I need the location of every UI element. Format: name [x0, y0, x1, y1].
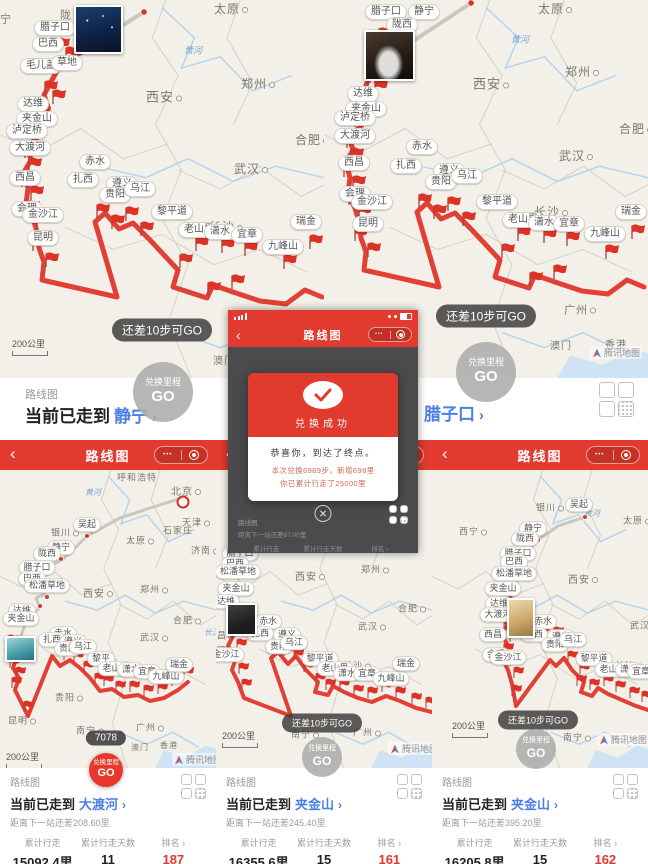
section-label: 路线图 [25, 386, 58, 402]
station-bubble: 瑞金 [165, 657, 193, 672]
redeem-go-button[interactable]: 兑换里程GO [89, 753, 123, 787]
flag-marker [310, 234, 323, 249]
stat-label[interactable]: 排名 › [357, 836, 422, 849]
station-bubble: 吴起 [565, 497, 593, 512]
chevron-icon[interactable]: › [122, 798, 126, 812]
station-bubble: 夹金山 [2, 611, 39, 626]
station-bubble: 乌江 [124, 181, 156, 197]
station-bubble: 陇西 [33, 546, 61, 561]
nav-bar: ‹ 路线图 ••• [228, 323, 418, 347]
checkin-photo [74, 5, 123, 54]
stat-cell: 排名 ›162 [573, 836, 638, 864]
bottom-left-screenshot: ‹路线图•••呼和浩特北京天津石家庄济南太原银川西安郑州合肥武汉贵阳昆明南宁广州… [0, 440, 216, 864]
capsule: ••• [586, 446, 640, 464]
redeem-go-label: 兑换里程 [145, 377, 181, 388]
flag-marker [396, 687, 406, 698]
map-attribution: 腾讯地图 [590, 346, 642, 359]
city-label: 澳门 [131, 744, 149, 752]
qr-code-icon[interactable] [195, 788, 206, 799]
city-label: 郑州 [140, 586, 168, 595]
city-label: 合肥 [398, 605, 426, 614]
route-map[interactable]: 呼和浩特北京天津石家庄济南太原银川西安郑州合肥武汉贵阳昆明南宁广州澳门香港长江黄… [0, 470, 216, 768]
city-label: 合肥 [295, 134, 324, 146]
section-label: 路线图 [442, 774, 638, 789]
city-dot-icon [213, 548, 216, 554]
window-icon[interactable] [400, 505, 408, 513]
station-bubble: 黎平道 [476, 194, 518, 210]
stats-row: 累计行走15092.4里累计行走天数11排名 ›187 [10, 836, 206, 864]
city-label: 香港 [160, 742, 178, 750]
station-dot [468, 0, 474, 6]
province-border [502, 166, 648, 196]
flag-marker [180, 253, 193, 268]
station-bubble: 九峰山 [262, 239, 304, 255]
stat-cell: 累计行走天数15 [507, 836, 572, 864]
flag-marker [104, 675, 114, 686]
stat-value: 162 [573, 852, 638, 864]
map-attribution: 腾讯地图 [388, 742, 432, 755]
map-attribution-label: 腾讯地图 [186, 753, 216, 766]
station-bubble: 金沙江 [351, 194, 393, 210]
flag-marker [242, 679, 252, 690]
flag-marker [239, 663, 249, 674]
station-bubble: 宜章 [627, 664, 648, 679]
station-bubble: 乌江 [451, 168, 483, 184]
congrats-text: 恭喜你，到达了终点。 [253, 446, 393, 459]
capsule: ••• [154, 446, 208, 464]
stat-value: 187 [141, 852, 206, 864]
station-bubble: 昆明 [27, 230, 59, 246]
city-label: 黄河 [511, 36, 529, 45]
station-bubble: 九峰山 [372, 671, 409, 686]
station-bubble: 大渡河 [9, 140, 51, 156]
stat-value: 15092.4里 [10, 852, 75, 864]
station-bubble: 金沙江 [489, 650, 526, 665]
city-label: 武汉 [234, 163, 268, 175]
flag-marker [144, 685, 154, 696]
window-icon[interactable] [613, 774, 624, 785]
current-station-link[interactable]: 腊子口 [424, 400, 475, 425]
stat-value: 16205.8里 [442, 852, 507, 864]
checkin-photo [507, 598, 535, 638]
city-dot-icon [176, 95, 182, 101]
station-dot [141, 9, 147, 15]
redeem-go-text: GO [313, 754, 332, 769]
map-scale-bar [6, 764, 42, 768]
chevron-icon[interactable]: › [554, 798, 558, 812]
square-icon[interactable] [599, 401, 615, 417]
station-dot [85, 534, 90, 539]
next-station-info: 距离下一站还差245.40里 [226, 816, 422, 829]
flag-marker [448, 196, 461, 211]
city-dot-icon [375, 730, 381, 736]
detail-line-2: 你已累计行走了25000里 [253, 478, 393, 489]
station-bubble: 夹金山 [484, 581, 521, 596]
city-dot-icon [380, 624, 386, 630]
flag-marker [126, 206, 139, 221]
flag-marker [31, 185, 44, 200]
exit-icon[interactable] [391, 330, 412, 339]
city-label: 黄河 [85, 489, 101, 497]
redeem-go-label: 兑换里程 [468, 357, 504, 368]
city-dot-icon [566, 7, 572, 13]
city-label: 石家庄 [163, 527, 193, 536]
city-label: 武汉 [140, 634, 168, 643]
city-label: 太原 [214, 3, 248, 15]
city-label: 昆明 [8, 717, 36, 726]
flag-marker [368, 687, 378, 698]
station-bubble: 九峰山 [584, 226, 626, 242]
chevron-icon[interactable]: › [479, 407, 484, 424]
mini-program-icons [389, 505, 408, 524]
stat-label: 累计行走 [238, 543, 295, 553]
mini-program-icons [397, 774, 422, 799]
map-scale-label: 200公里 [12, 339, 45, 349]
city-dot-icon [162, 587, 168, 593]
checkin-photo [364, 30, 415, 81]
map-scale: 200公里 [6, 753, 42, 768]
header-bar: ‹路线图••• [432, 440, 648, 470]
flag-marker [46, 252, 59, 267]
stat-label: 累计行走天数 [291, 836, 356, 849]
window-icon[interactable] [181, 774, 192, 785]
city-dot-icon [162, 635, 168, 641]
city-label: 武汉 [630, 622, 648, 631]
current-station-line: 当前已走到夹金山› [226, 794, 422, 813]
city-label: 西安 [83, 590, 113, 600]
next-station-info: 距离下一站还差208.60里 [10, 816, 206, 829]
station-bubble: 宜章 [231, 227, 263, 243]
city-dot-icon [77, 695, 83, 701]
redeem-go-text: GO [151, 388, 174, 407]
station-bubble: 草地 [51, 55, 83, 71]
capsule: ••• [368, 327, 412, 342]
city-dot-icon [503, 82, 509, 88]
stat-cell: 累计行走天数13 [295, 543, 352, 553]
city-dot-icon [262, 167, 268, 173]
station-bubble: 泸定桥 [6, 123, 48, 139]
station-bubble: 瑞金 [615, 204, 647, 220]
success-title: 兑换成功 [295, 415, 351, 430]
flag-marker [630, 687, 640, 698]
flag-marker [632, 224, 645, 239]
stat-cell: 累计行走16205.8里 [442, 836, 507, 864]
current-station-link[interactable]: 大渡河 [79, 794, 118, 813]
redeem-go-button[interactable]: 兑换里程GO [302, 737, 342, 777]
route-map[interactable]: 西宁银川太原西安武汉长沙南宁黄河吴起静宁陇西腊子口巴西松潘草地夹金山达维大渡河西… [432, 470, 648, 768]
stat-label[interactable]: 排名 › [573, 836, 638, 849]
compass-icon [174, 755, 184, 765]
province-border [551, 0, 577, 125]
map-scale: 200公里 [452, 722, 488, 738]
window-icon[interactable] [397, 774, 408, 785]
finish-ring-icon [177, 496, 190, 509]
stat-label: 累计行走天数 [507, 836, 572, 849]
more-icon[interactable]: ••• [369, 332, 390, 337]
city-dot-icon [593, 70, 599, 76]
stat-cell: 累计行走天数15 [291, 836, 356, 864]
city-label: 合肥 [173, 617, 201, 626]
flag-marker [130, 681, 140, 692]
mini-program-icons [181, 774, 206, 799]
station-bubble: 泸定桥 [334, 110, 376, 126]
station-bubble: 黎平道 [151, 204, 193, 220]
walking-app-screenshot-collage: 宁陇太原郑州西安合肥武汉长沙澳门黄河腊子口巴西毛儿盖草地达维夹金山泸定桥大渡河西… [0, 0, 648, 864]
station-bubble: 陇西 [511, 531, 539, 546]
city-dot-icon [195, 489, 201, 495]
steps-remaining-badge: 还差10步可GO [498, 711, 578, 730]
stat-label: 累计行走 [442, 836, 507, 849]
city-dot-icon [590, 308, 596, 314]
window-icon[interactable] [411, 774, 422, 785]
map-scale-label: 200公里 [452, 721, 485, 731]
city-label: 郑州 [565, 66, 599, 78]
redeem-go-button[interactable]: 兑换里程GO [516, 729, 556, 769]
city-label: 西安 [146, 91, 182, 104]
city-dot-icon [592, 577, 598, 583]
back-button[interactable]: ‹ [10, 445, 16, 462]
redeem-success-screenshot: ‹ 路线图 ••• 兑换成功 恭喜你，到达了终点。 [228, 310, 418, 553]
station-bubble: 金沙江 [22, 207, 64, 223]
chevron-icon[interactable]: › [338, 798, 342, 812]
city-dot-icon [420, 606, 426, 612]
more-icon[interactable]: ••• [587, 452, 613, 458]
stats-row: 累计行走25000里累计行走天数13排名 ›40 [238, 543, 408, 553]
flag-marker [554, 264, 567, 279]
back-icon[interactable]: ‹ [236, 328, 241, 342]
station-bubble: 达维 [347, 86, 379, 102]
station-bubble: 松潘草地 [24, 578, 70, 593]
window-icon[interactable] [618, 382, 634, 398]
station-bubble: 乌江 [559, 632, 587, 647]
stat-cell: 排名 ›187 [141, 836, 206, 864]
flag-marker [616, 681, 626, 692]
success-card: 兑换成功 恭喜你，到达了终点。 本次兑换6989步，新增698里 你已累计行走了… [248, 373, 398, 501]
mini-program-icons [613, 774, 638, 799]
city-label: 南宁 [563, 734, 591, 743]
station-bubble: 赤水 [406, 139, 438, 155]
station-bubble: 大渡河 [334, 128, 376, 144]
back-button[interactable]: ‹ [442, 445, 448, 462]
qr-code-icon[interactable] [627, 788, 638, 799]
square-icon[interactable] [613, 788, 624, 799]
page-title: 路线图 [517, 446, 562, 465]
city-dot-icon [585, 735, 591, 741]
city-dot-icon [30, 718, 36, 724]
detail-line-1: 本次兑换6989步，新增698里 [253, 465, 393, 476]
city-label: 太原 [538, 3, 572, 15]
map-scale-label: 200公里 [222, 731, 255, 741]
flag-marker [642, 691, 648, 702]
city-label: 太原 [126, 537, 154, 546]
city-dot-icon [242, 7, 248, 13]
section-label: 路线图 [238, 517, 408, 527]
province-border [119, 601, 216, 625]
city-label: 郑州 [241, 78, 275, 90]
city-label: 长江 [204, 629, 216, 637]
more-icon[interactable]: ••• [155, 452, 181, 458]
city-label: 西安 [295, 573, 325, 583]
map-attribution-label: 腾讯地图 [604, 346, 640, 359]
station-bubble: 巴西 [32, 36, 64, 52]
city-dot-icon [319, 574, 325, 580]
city-dot-icon [195, 618, 201, 624]
city-dot-icon [481, 529, 487, 535]
compass-icon [592, 348, 602, 358]
square-icon[interactable] [397, 788, 408, 799]
flag-marker [53, 89, 66, 104]
station-bubble: 扎西 [390, 158, 422, 174]
map-scale-bar [452, 733, 488, 738]
stat-cell: 排名 ›161 [357, 836, 422, 864]
city-dot-icon [587, 154, 593, 160]
notification-dot-icon [394, 315, 397, 318]
city-label: 广州 [136, 724, 164, 733]
square-icon[interactable] [389, 516, 397, 524]
redeem-go-text: GO [474, 368, 497, 387]
city-label: 黄河 [184, 47, 202, 56]
city-label: 贵阳 [55, 694, 83, 703]
station-dot [38, 604, 43, 609]
exit-icon[interactable] [614, 450, 640, 460]
dimmed-stats: 路线图 距离下一站还差67.00里 累计行走25000里累计行走天数13排名 ›… [238, 517, 408, 553]
station-bubble: 松潘草地 [216, 564, 261, 579]
checkin-photo [5, 636, 36, 662]
map-scale-bar [222, 743, 258, 748]
exit-icon[interactable] [182, 450, 208, 460]
checkin-photo [226, 603, 257, 636]
status-bar [228, 310, 418, 323]
city-dot-icon [158, 725, 164, 731]
stat-cell: 排名 ›40 [351, 543, 408, 553]
flag-marker [606, 244, 619, 259]
station-bubble: 西昌 [479, 627, 507, 642]
station-bubble: 乌江 [280, 635, 308, 650]
window-icon[interactable] [627, 774, 638, 785]
check-icon [303, 381, 343, 409]
current-prefix: 当前已走到 [25, 402, 110, 427]
stats-section: 路线图当前已走到夹金山›距离下一站还差395.20里累计行走16205.8里累计… [432, 768, 648, 864]
window-icon[interactable] [195, 774, 206, 785]
station-bubble: 金沙江 [216, 647, 245, 662]
next-station-info: 距离下一站还差395.20里 [442, 816, 638, 829]
redeem-go-label: 兑换里程 [308, 745, 336, 754]
next-station-info: 距离下一站还差67.00里 [238, 529, 408, 539]
flag-marker [412, 693, 422, 704]
city-dot-icon [383, 567, 389, 573]
stat-label[interactable]: 排名 › [351, 543, 408, 553]
city-label: 西安 [568, 576, 598, 586]
mini-program-icons [599, 382, 634, 417]
current-station-link[interactable]: 夹金山 [295, 794, 334, 813]
qr-code-icon[interactable] [400, 516, 408, 524]
map-attribution-label: 腾讯地图 [611, 733, 647, 746]
steps-count-pill: 7078 [86, 731, 126, 746]
city-label: 郑州 [361, 566, 389, 575]
stat-cell: 累计行走25000里 [238, 543, 295, 553]
city-dot-icon [562, 210, 568, 216]
compass-icon [390, 744, 400, 754]
stat-label[interactable]: 排名 › [141, 836, 206, 849]
city-dot-icon [204, 520, 210, 526]
bottom-right-screenshot: ‹路线图•••西宁银川太原西安武汉长沙南宁黄河吴起静宁陇西腊子口巴西松潘草地夹金… [432, 440, 648, 864]
city-label: 广州 [564, 306, 596, 317]
station-bubble: 达维 [17, 96, 49, 112]
stats-section: 路线图当前已走到夹金山›距离下一站还差245.40里累计行走16355.6里累计… [216, 768, 432, 864]
city-label: 济南 [191, 547, 216, 556]
stats-row: 累计行走16355.6里累计行走天数15排名 ›161 [226, 836, 422, 864]
city-dot-icon [269, 82, 275, 88]
station-bubble: 西昌 [9, 170, 41, 186]
city-label: 西安 [473, 78, 509, 91]
station-bubble: 瑞金 [392, 656, 420, 671]
flag-marker [567, 231, 580, 246]
stat-value: 161 [357, 852, 422, 864]
notification-dot-icon [388, 315, 391, 318]
province-border [227, 0, 253, 125]
current-station-line: 当前已走到大渡河› [10, 794, 206, 813]
stats-row: 累计行走16205.8里累计行走天数15排名 ›162 [442, 836, 638, 864]
window-icon[interactable] [389, 505, 397, 513]
redeem-go-label: 兑换里程 [93, 759, 119, 767]
steps-remaining-badge: 还差10步可GO [282, 714, 362, 733]
current-station-line: 当前已走到夹金山› [442, 794, 638, 813]
stat-cell: 累计行走15092.4里 [10, 836, 75, 864]
flag-marker [354, 685, 364, 696]
city-dot-icon [323, 138, 324, 144]
flag-marker [518, 226, 531, 241]
city-label: 银川 [536, 504, 564, 513]
station-bubble: 腊子口 [34, 20, 76, 36]
city-label: 呼和浩特 [117, 474, 157, 483]
header-bar: ‹路线图••• [0, 440, 216, 470]
signal-icon [234, 313, 247, 320]
qr-code-icon[interactable] [618, 401, 634, 417]
city-dot-icon [107, 591, 113, 597]
current-station-link[interactable]: 夹金山 [511, 794, 550, 813]
window-icon[interactable] [599, 382, 615, 398]
stat-label: 累计行走 [10, 836, 75, 849]
stat-cell: 累计行走16355.6里 [226, 836, 291, 864]
square-icon[interactable] [181, 788, 192, 799]
city-dot-icon [148, 538, 154, 544]
redeem-go-button[interactable]: 兑换里程GO [133, 362, 193, 422]
city-label: 西宁 [459, 528, 487, 537]
dialog-overlay: 兑换成功 恭喜你，到达了终点。 本次兑换6989步，新增698里 你已累计行走了… [228, 347, 418, 553]
city-label: 合肥 [619, 123, 648, 135]
city-label: 武汉 [559, 150, 593, 162]
qr-code-icon[interactable] [411, 788, 422, 799]
flag-marker [158, 683, 168, 694]
map-attribution: 腾讯地图 [172, 753, 216, 766]
city-dot-icon [558, 505, 564, 511]
station-bubble: 赤水 [79, 154, 111, 170]
station-bubble: 西昌 [338, 155, 370, 171]
current-prefix: 当前已走到 [10, 794, 75, 813]
redeem-go-button[interactable]: 兑换里程GO [456, 342, 516, 402]
sea-water [583, 746, 648, 768]
map-scale-label: 200公里 [6, 752, 39, 762]
map-attribution-label: 腾讯地图 [402, 742, 432, 755]
city-label: 宁 [0, 15, 12, 26]
stat-label: 累计行走 [226, 836, 291, 849]
flag-marker [232, 274, 245, 289]
station-bubble: 扎西 [67, 172, 99, 188]
stat-value: 16355.6里 [226, 852, 291, 864]
map-attribution: 腾讯地图 [597, 733, 648, 746]
redeem-go-text: GO [97, 767, 114, 781]
redeem-go-label: 兑换里程 [522, 737, 550, 746]
